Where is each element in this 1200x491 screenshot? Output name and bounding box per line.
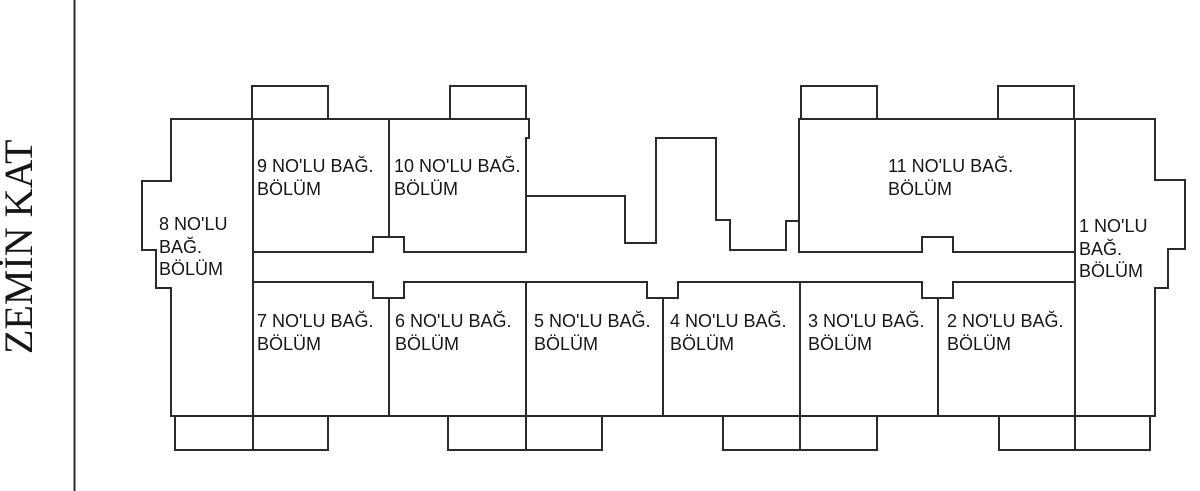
room-1-label: 1 NO'LU BAĞ. BÖLÜM (1079, 215, 1147, 283)
wall-room10-east (526, 119, 529, 252)
room-4-label: 4 NO'LU BAĞ. BÖLÜM (670, 310, 786, 355)
wall-entrance-recess (526, 138, 799, 250)
wall-corridor-bottom (253, 282, 1075, 298)
wall-corridor-top-west (253, 237, 526, 252)
room-5-label: 5 NO'LU BAĞ. BÖLÜM (534, 310, 650, 355)
room-11-label: 11 NO'LU BAĞ. BÖLÜM (888, 155, 1013, 200)
balcony-bottom-1 (175, 416, 328, 450)
balcony-top-4 (998, 86, 1074, 119)
room-6-label: 6 NO'LU BAĞ. BÖLÜM (395, 310, 511, 355)
balcony-top-1 (252, 86, 328, 119)
room-7-label: 7 NO'LU BAĞ. BÖLÜM (257, 310, 373, 355)
wall-corridor-top-east (799, 237, 1075, 252)
room-3-label: 3 NO'LU BAĞ. BÖLÜM (808, 310, 924, 355)
room-8-label: 8 NO'LU BAĞ. BÖLÜM (159, 213, 227, 281)
wall-room1-east-profile (1155, 119, 1185, 416)
room-2-label: 2 NO'LU BAĞ. BÖLÜM (947, 310, 1063, 355)
floor-plan: ZEMİN KAT 1 NO'L (0, 0, 1200, 491)
room-10-label: 10 NO'LU BAĞ. BÖLÜM (394, 155, 520, 200)
balcony-top-2 (450, 86, 526, 119)
room-9-label: 9 NO'LU BAĞ. BÖLÜM (257, 155, 373, 200)
balcony-top-3 (801, 86, 877, 119)
